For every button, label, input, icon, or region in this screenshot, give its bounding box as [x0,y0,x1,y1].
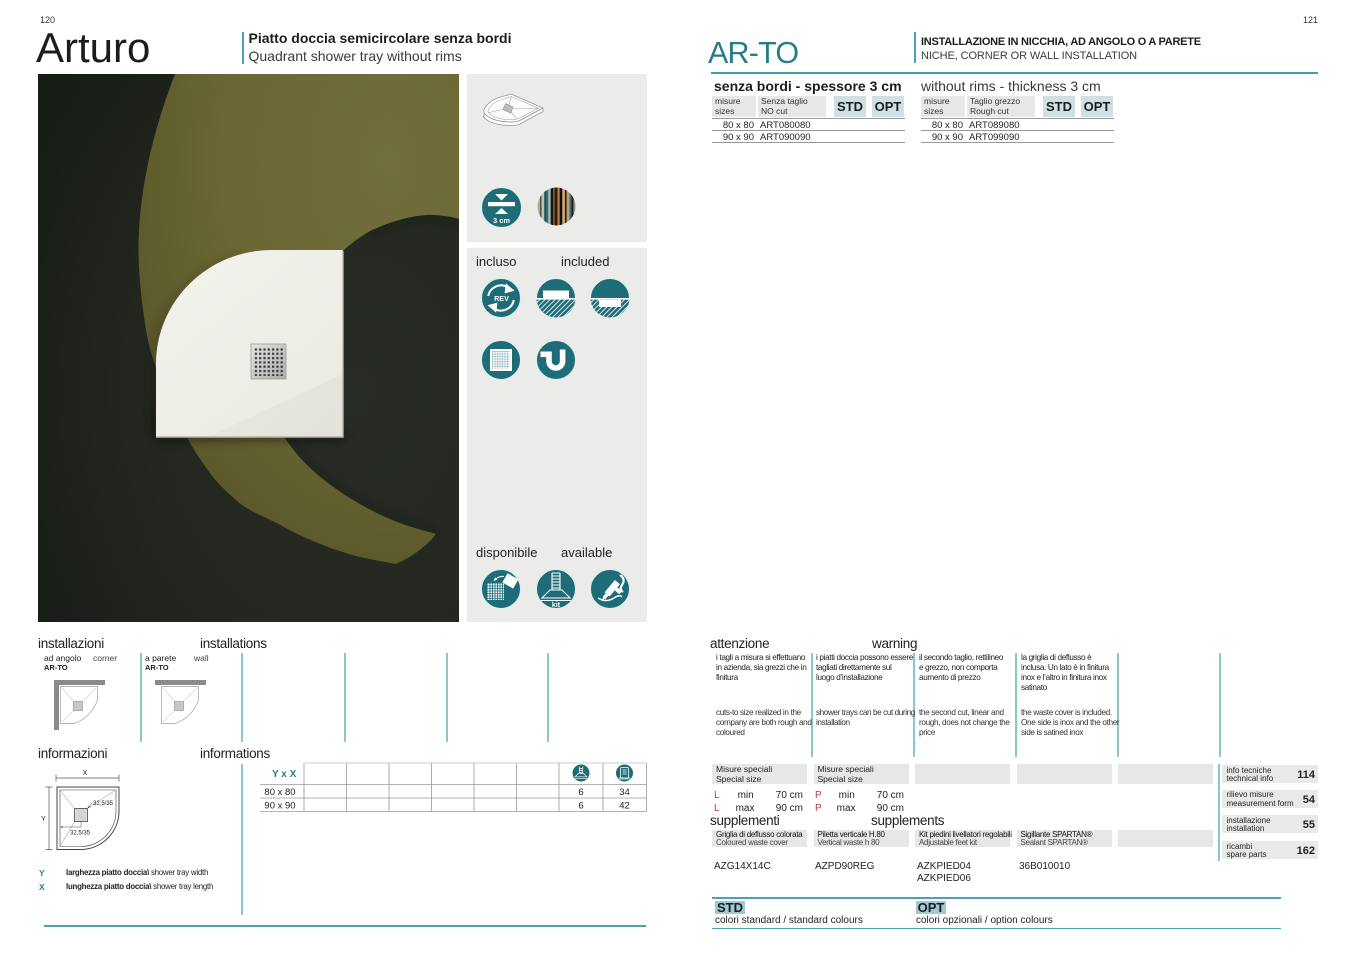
svg-text:34: 34 [619,787,630,798]
svg-text:42: 42 [619,801,630,812]
svg-text:32,5/35: 32,5/35 [70,831,91,837]
svg-text:80 x 80: 80 x 80 [264,787,295,798]
svg-text:6: 6 [578,787,583,798]
svg-text:Y x X: Y x X [272,769,297,780]
svg-text:Y: Y [41,816,46,823]
svg-text:kit: kit [551,602,560,609]
svg-text:6: 6 [578,801,583,812]
svg-text:REV: REV [494,294,509,303]
svg-text:X: X [83,770,88,777]
svg-text:90 x 90: 90 x 90 [264,801,295,812]
svg-text:3 cm: 3 cm [493,216,510,225]
svg-text:32,5/35: 32,5/35 [93,801,114,807]
svg-text:misure: misure [619,776,631,780]
